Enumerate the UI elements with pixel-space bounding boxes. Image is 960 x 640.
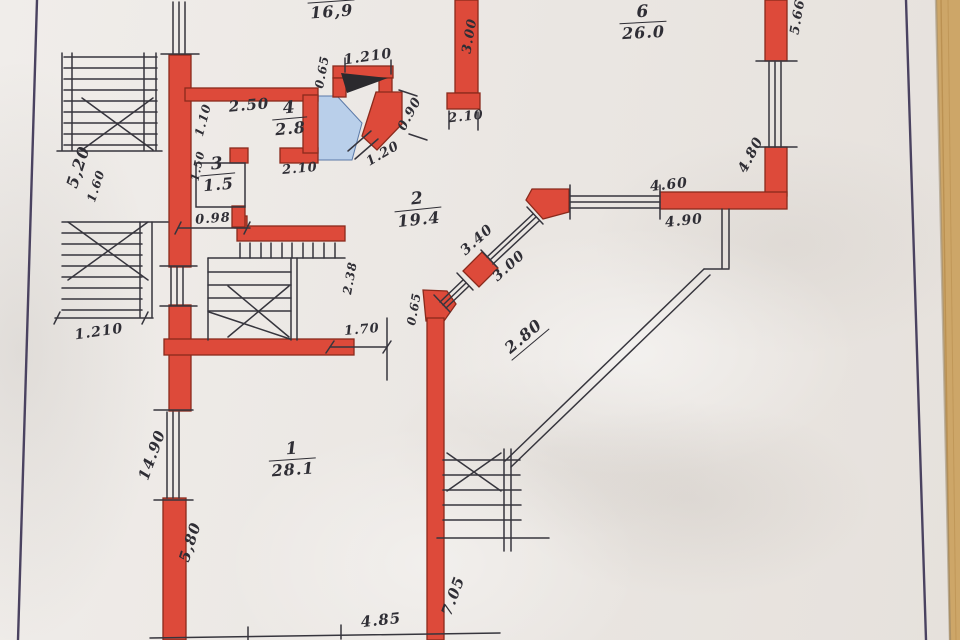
wall-top-center-vertical-3-00 xyxy=(455,0,478,93)
wall-right-upper xyxy=(765,0,787,61)
wall-top-center-corner xyxy=(447,93,480,109)
wood-table-edge xyxy=(936,0,960,640)
window-top-left xyxy=(161,2,199,54)
door-left-wall xyxy=(160,266,197,306)
wall-stub-b xyxy=(232,206,245,227)
wall-7-05 xyxy=(427,318,444,640)
window-left-wall xyxy=(154,410,193,500)
wall-left-lower-5-80 xyxy=(163,498,186,640)
wall-room4-bottom-left xyxy=(230,148,248,163)
floor-plan-drawing xyxy=(0,0,960,640)
staircase-top-left xyxy=(57,53,162,151)
room3-partition xyxy=(196,163,245,207)
window-right-wall xyxy=(756,61,797,147)
photo-of-floor-plan: 16,9626.042.831.5219.4128.15,201.601.210… xyxy=(0,0,960,640)
staircase-bottom-left xyxy=(54,222,168,324)
wall-left-mid xyxy=(169,305,191,411)
wall-right-lower xyxy=(765,147,787,196)
wall-room6-bottom xyxy=(660,192,787,209)
window-room6-bottom xyxy=(570,185,660,219)
wall-left-upper xyxy=(169,55,191,267)
wall-diagonal-corner-lower xyxy=(423,290,456,321)
wall-room2-top xyxy=(237,226,345,241)
blue-floor xyxy=(318,96,362,160)
wall-room4-top xyxy=(185,88,318,101)
diagonal-window-3-40 xyxy=(481,207,543,267)
staircase-central xyxy=(208,243,345,340)
red-walls xyxy=(163,0,787,640)
staircase-terrace xyxy=(437,449,549,551)
wall-vestibule-right xyxy=(362,92,402,150)
wall-vestibule-left xyxy=(303,95,318,153)
terrace-rail xyxy=(505,209,729,467)
